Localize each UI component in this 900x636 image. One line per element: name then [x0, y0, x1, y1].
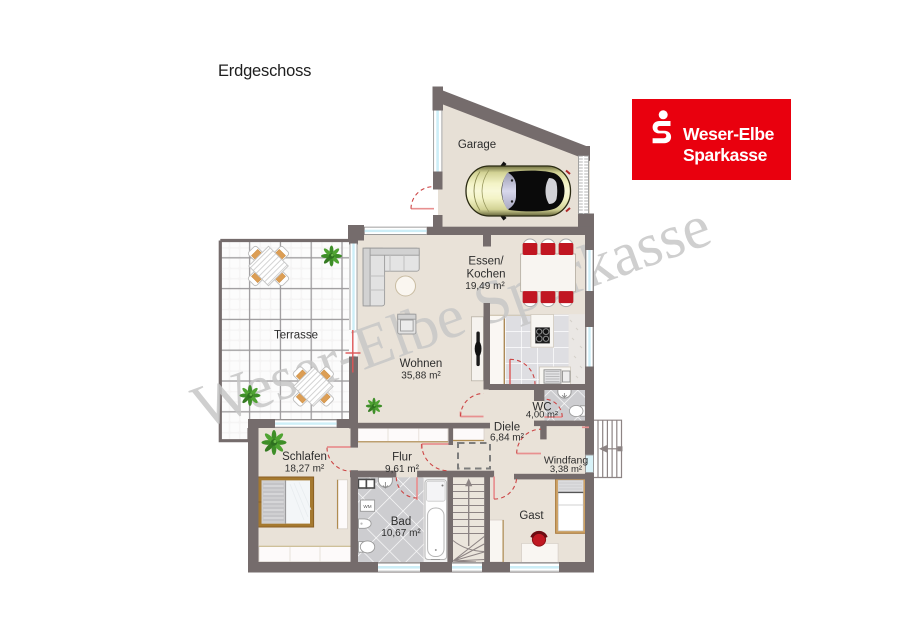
svg-text:Kochen: Kochen [466, 269, 505, 281]
svg-text:Sparkasse: Sparkasse [683, 145, 768, 165]
svg-text:Gast: Gast [519, 510, 544, 522]
svg-text:4,00 m²: 4,00 m² [526, 409, 558, 420]
svg-text:Weser-Elbe: Weser-Elbe [683, 124, 775, 144]
svg-text:Schlafen: Schlafen [282, 451, 327, 463]
svg-text:19,49 m²: 19,49 m² [465, 281, 505, 292]
svg-text:10,67 m²: 10,67 m² [381, 528, 421, 539]
svg-text:Terrasse: Terrasse [274, 330, 318, 342]
svg-text:Bad: Bad [391, 516, 411, 528]
svg-text:9,61 m²: 9,61 m² [385, 464, 420, 475]
svg-text:3,38 m²: 3,38 m² [550, 464, 582, 475]
svg-text:6,84 m²: 6,84 m² [490, 433, 525, 444]
svg-text:18,27 m²: 18,27 m² [285, 464, 325, 475]
svg-text:Garage: Garage [458, 139, 496, 151]
svg-text:WM: WM [363, 504, 371, 509]
svg-text:Wohnen: Wohnen [400, 358, 443, 370]
svg-text:Erdgeschoss: Erdgeschoss [218, 62, 311, 80]
svg-text:Flur: Flur [392, 452, 412, 464]
svg-text:35,88 m²: 35,88 m² [401, 371, 441, 382]
svg-text:Essen/: Essen/ [468, 256, 504, 268]
